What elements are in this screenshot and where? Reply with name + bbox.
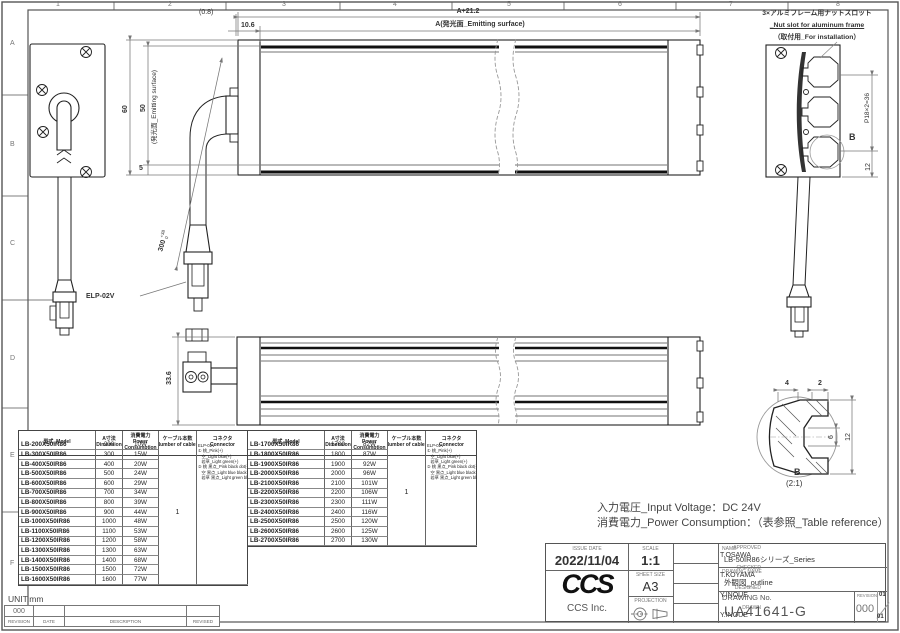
model-cell: LB-2400X50IR86 [248, 508, 325, 518]
dimension-cell: 2600 [325, 527, 352, 537]
model-cell: LB-1300X50IR86 [19, 546, 96, 556]
dimension-cell: 300 [96, 450, 123, 460]
dimension-cell: 1800 [325, 450, 352, 460]
product-name: LB-50IR86シリーズ_Series [724, 554, 815, 565]
dimension-cell: 400 [96, 460, 123, 470]
dim-emitting-top: A(発光面_Emitting surface) [400, 21, 560, 28]
dim-detail-2: 2 [818, 380, 822, 387]
power-cell: 106W [352, 489, 388, 499]
revision-mark-top: 01 [879, 592, 886, 598]
model-cell: LB-2500X50IR86 [248, 517, 325, 527]
power-cell: 68W [123, 556, 159, 566]
model-cell: LB-200X50IR86 [19, 441, 96, 451]
model-cell: LB-1000X50IR86 [19, 517, 96, 527]
model-cell: LB-2200X50IR86 [248, 489, 325, 499]
model-cell: LB-1700X50IR86 [248, 441, 325, 451]
dimension-cell: 1300 [96, 546, 123, 556]
dimension-cell: 1600 [96, 575, 123, 585]
power-cell: 82W [352, 441, 388, 451]
sheet-size-value: A3 [628, 579, 673, 594]
model-cell: LB-2600X50IR86 [248, 527, 325, 537]
detail-b-view [757, 397, 837, 477]
power-cell: 24W [123, 469, 159, 479]
model-cell: LB-600X50IR86 [19, 479, 96, 489]
drawing-name: 外観図_outline [724, 577, 773, 588]
connector-info-cell: ELP-02V ① 桃_Pink(+) 空_Light blue(+) 若草_L… [197, 441, 248, 585]
zone-number: 4 [393, 1, 397, 8]
note-nut-slot-2: _Nut slot for aluminum frame [746, 22, 888, 29]
label-connector-model: ELP-02V [86, 293, 114, 300]
power-cell: 130W [352, 537, 388, 547]
title-block: ISSUE DATE 2022/11/04 CCS CCS Inc. SCALE… [545, 543, 886, 622]
section-mark-b: B [849, 133, 856, 142]
cables-count-cell: 1 [388, 441, 426, 547]
dim-height-60: 60 [122, 105, 129, 113]
zone-letter: A [10, 40, 15, 47]
dimension-cell: 2000 [325, 469, 352, 479]
model-cell: LB-1400X50IR86 [19, 556, 96, 566]
revision-strip-header: REVISED [186, 616, 220, 627]
drawing-no-label: DRAWING No. [722, 593, 772, 602]
scale-value: 1:1 [628, 553, 673, 568]
issue-date-label: ISSUE DATE [546, 546, 628, 552]
power-cell: 39W [123, 498, 159, 508]
dimension-cell: 500 [96, 469, 123, 479]
zone-number: 3 [282, 1, 286, 8]
dimension-cell: 600 [96, 479, 123, 489]
note-power: 消費電力_Power Consumption：（表参照_Table refere… [597, 518, 889, 530]
zone-number: 6 [618, 1, 622, 8]
model-cell: LB-2100X50IR86 [248, 479, 325, 489]
model-cell: LB-1500X50IR86 [19, 565, 96, 575]
power-cell: 58W [123, 537, 159, 547]
revision-strip-header: REVISION [4, 616, 34, 627]
dimension-cell: 2700 [325, 537, 352, 547]
zone-letter: B [10, 141, 15, 148]
note-nut-slot-3: （取付用_For installation） [746, 34, 888, 41]
power-cell: 34W [123, 489, 159, 499]
revision-strip-header: DATE [33, 616, 65, 627]
dim-height-50: 50 [140, 104, 147, 112]
zone-number: 7 [729, 1, 733, 8]
revision-strip-header: DESCRIPTION [64, 616, 187, 627]
zone-letter: C [10, 240, 15, 247]
model-cell: LB-400X50IR86 [19, 460, 96, 470]
model-cell: LB-1800X50IR86 [248, 450, 325, 460]
model-cell: LB-2000X50IR86 [248, 469, 325, 479]
issue-date: 2022/11/04 [546, 553, 628, 568]
power-cell: 101W [352, 479, 388, 489]
dim-overall: A+21.2 [438, 8, 498, 15]
power-cell: 20W [123, 460, 159, 470]
power-cell: 53W [123, 527, 159, 537]
dimension-cell: 2500 [325, 517, 352, 527]
sheet-size-label: SHEET SIZE [628, 572, 673, 578]
left-end-view [30, 44, 105, 335]
ccs-logo: CCS CCS Inc. [546, 572, 628, 616]
model-cell: LB-1200X50IR86 [19, 537, 96, 547]
rear-view [183, 329, 703, 425]
unit-note: UNIT:mm [8, 595, 43, 604]
zone-number: 2 [168, 1, 172, 8]
power-cell: 72W [123, 565, 159, 575]
power-cell: 77W [123, 575, 159, 585]
dim-top-offset: (0.8) [199, 9, 213, 16]
model-cell: LB-2700X50IR86 [248, 537, 325, 547]
dimension-cell: 800 [96, 498, 123, 508]
dimension-cell: 2200 [325, 489, 352, 499]
zone-number: 1 [56, 1, 60, 8]
dimension-cell: 900 [96, 508, 123, 518]
dimension-cell: 1100 [96, 527, 123, 537]
dim-detail-4: 4 [785, 380, 789, 387]
dim-height-5: 5 [139, 165, 143, 172]
spec-table-left: 型式_Model A寸法 Dimension 消費電力 Power Consum… [18, 430, 248, 586]
dimension-cell: 1400 [96, 556, 123, 566]
dim-depth: 33.6 [166, 356, 173, 400]
model-cell: LB-300X50IR86 [19, 450, 96, 460]
drawing-no: UA41641-G [724, 603, 807, 619]
zone-number: 8 [836, 1, 840, 8]
dimension-cell: 2400 [325, 508, 352, 518]
dim-slot-pitch: P18×2=36 [865, 68, 872, 148]
power-cell: 15W [123, 450, 159, 460]
power-cell: 116W [352, 508, 388, 518]
model-cell: LB-700X50IR86 [19, 489, 96, 499]
model-cell: LB-1100X50IR86 [19, 527, 96, 537]
model-cell: LB-800X50IR86 [19, 498, 96, 508]
power-cell: 96W [352, 469, 388, 479]
revision-value: 000 [852, 603, 878, 615]
model-cell: LB-900X50IR86 [19, 508, 96, 518]
dimension-cell: 700 [96, 489, 123, 499]
right-end-view [766, 42, 844, 337]
company-name: CCS Inc. [567, 603, 607, 614]
model-cell: LB-2300X50IR86 [248, 498, 325, 508]
dim-detail-12: 12 [845, 422, 852, 452]
dimension-cell: 1000 [96, 517, 123, 527]
revision-mark-bottom: 01 [877, 614, 884, 620]
dim-slot-offset: 12 [865, 154, 872, 180]
power-cell: 111W [352, 498, 388, 508]
scale-label: SCALE [628, 546, 673, 552]
zone-letter: D [10, 355, 15, 362]
dimension-cell: 1200 [96, 537, 123, 547]
power-cell: 29W [123, 479, 159, 489]
note-input-voltage: 入力電圧_Input Voltage：DC 24V [597, 503, 761, 515]
connector-info-cell: ELP-02V ① 桃_Pink(+) 空_Light blue(+) 若草_L… [426, 441, 477, 547]
dim-endcap: 10.6 [241, 22, 255, 29]
detail-label-b: B [794, 468, 801, 477]
ccs-logo-text: CCS [561, 569, 612, 599]
drawing-sheet: 1 2 3 4 5 6 7 8 A B C D E F (0.8) 10.6 A… [0, 0, 900, 633]
spec-table-right: 型式_Model A寸法 Dimension 消費電力 Power Consum… [247, 430, 477, 547]
power-cell: 10W [123, 441, 159, 451]
power-cell: 44W [123, 508, 159, 518]
power-cell: 120W [352, 517, 388, 527]
zone-number: 5 [507, 1, 511, 8]
drawing-name-label: DRAWING NAME [722, 569, 762, 575]
zone-letter: E [10, 452, 15, 459]
dimension-cell: 1700 [325, 441, 352, 451]
projection-label: PROJECTION [628, 598, 673, 604]
dim-detail-6: 6 [828, 427, 835, 447]
dimension-cell: 2100 [325, 479, 352, 489]
detail-scale: (2:1) [786, 480, 802, 488]
name-label: NAME [722, 546, 736, 552]
projection-symbol-icon [628, 605, 673, 623]
power-cell: 48W [123, 517, 159, 527]
label-emitting-side: (発光面_Emitting surface) [152, 46, 159, 168]
zone-letter: F [10, 560, 14, 567]
dimension-cell: 1900 [325, 460, 352, 470]
model-cell: LB-1900X50IR86 [248, 460, 325, 470]
note-nut-slot-1: 3×アルミフレーム用ナットスロット [746, 10, 888, 17]
dimension-cell: 200 [96, 441, 123, 451]
cables-count-cell: 1 [159, 441, 197, 585]
dimension-cell: 1500 [96, 565, 123, 575]
power-cell: 87W [352, 450, 388, 460]
model-cell: LB-1600X50IR86 [19, 575, 96, 585]
power-cell: 63W [123, 546, 159, 556]
power-cell: 125W [352, 527, 388, 537]
dimension-cell: 2300 [325, 498, 352, 508]
model-cell: LB-500X50IR86 [19, 469, 96, 479]
side-view [184, 40, 703, 311]
power-cell: 92W [352, 460, 388, 470]
